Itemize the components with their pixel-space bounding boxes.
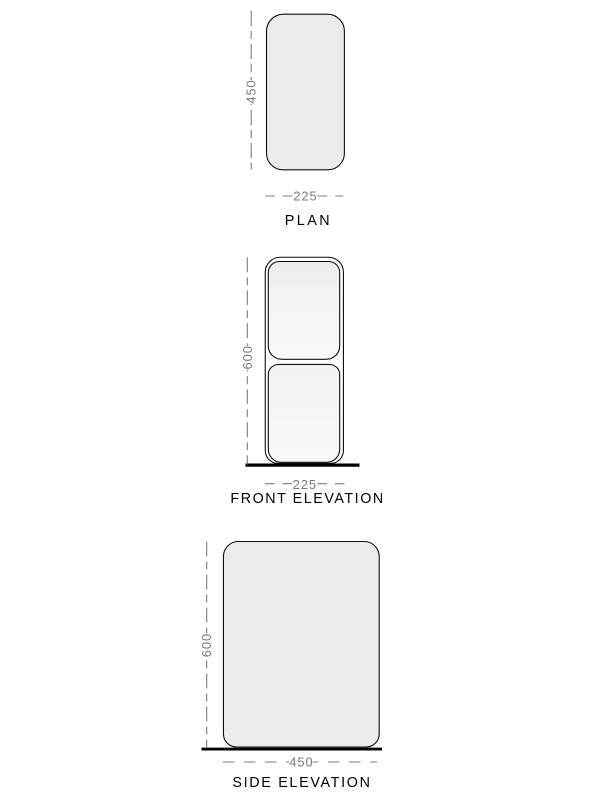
svg-text:PLAN: PLAN <box>285 213 332 229</box>
svg-text:600: 600 <box>240 345 255 369</box>
svg-text:225: 225 <box>293 477 317 492</box>
svg-text:FRONT ELEVATION: FRONT ELEVATION <box>230 491 384 507</box>
svg-text:450: 450 <box>244 79 259 103</box>
svg-text:SIDE ELEVATION: SIDE ELEVATION <box>232 775 371 791</box>
svg-text:225: 225 <box>293 188 317 203</box>
svg-text:450: 450 <box>289 755 313 770</box>
svg-text:600: 600 <box>199 633 214 657</box>
